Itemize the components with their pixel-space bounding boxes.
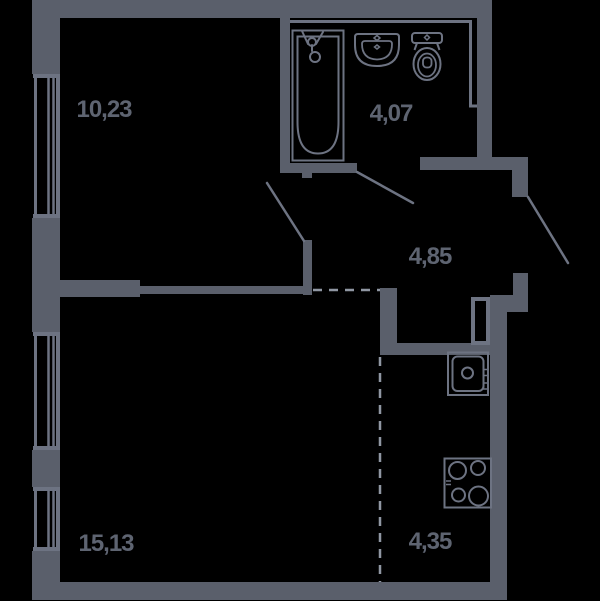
stove-burner-3: [452, 489, 465, 502]
window-3: [33, 489, 60, 549]
wall-hall-north: [420, 157, 528, 170]
door-entrance: [528, 197, 568, 263]
wall-left-upper: [32, 0, 60, 74]
bathtub-faucet: [302, 31, 323, 51]
kitchen-sink-drain: [462, 368, 473, 379]
kitchen-sink-tap-2: [484, 383, 489, 389]
area-label-kitchen: 4,35: [409, 528, 452, 555]
wall-entrance-jamb-upper: [512, 167, 528, 197]
walls: [32, 0, 528, 600]
bathroom-sink-outer: [355, 34, 399, 66]
window-2-caps: [33, 334, 60, 448]
stove-burner-4: [469, 487, 488, 506]
wall-bathroom-south: [280, 163, 357, 173]
wall-living-east: [380, 288, 397, 345]
stove-icon: [445, 459, 492, 508]
area-label-bathroom: 4,07: [370, 100, 413, 127]
area-label-room-bottom-left: 15,13: [78, 530, 134, 557]
wall-bathroom-right: [477, 17, 492, 167]
window-1-pane-lines: [49, 76, 54, 216]
bathtub-drain: [310, 52, 320, 62]
wall-door-stub: [303, 240, 312, 295]
area-label-hallway: 4,85: [409, 243, 452, 270]
bathroom-sink-drain-mark: [375, 45, 380, 49]
area-label-room-top-left: 10,23: [76, 96, 132, 123]
stove-burner-2: [471, 461, 485, 475]
stove-oven-marks: [446, 481, 451, 485]
bathroom-sink-bowl: [362, 41, 392, 60]
vent-shaft: [473, 299, 488, 343]
window-3-caps: [33, 489, 60, 549]
wall-door-jamb-tab: [302, 173, 312, 178]
bathroom-sink-tap-mark: [374, 36, 380, 41]
bathtub-icon: [293, 31, 344, 161]
door-room-top-left: [267, 183, 304, 241]
wall-bathroom-left-partition: [280, 17, 290, 173]
toilet-flush: [423, 58, 432, 68]
stove-burner-1: [449, 462, 466, 479]
window-2-pane-lines: [49, 334, 54, 448]
door-bathroom: [357, 172, 413, 203]
wall-bottom: [32, 582, 507, 600]
toilet-tank-mark: [425, 35, 430, 40]
kitchen-sink-icon: [448, 353, 488, 396]
window-2: [33, 334, 60, 448]
kitchen-sink-tap-1: [484, 370, 489, 376]
window-1-caps: [33, 76, 60, 216]
bathroom-sink-icon: [355, 34, 399, 66]
wall-middle-thick: [32, 280, 140, 297]
wall-kitchen-right: [490, 295, 507, 600]
wall-left-middle: [32, 218, 60, 332]
window-3-pane-lines: [49, 489, 54, 549]
wall-left-pier: [32, 450, 60, 487]
wall-middle-partition: [140, 286, 312, 294]
open-plan-boundary: [313, 290, 380, 582]
window-1: [33, 76, 60, 216]
kitchen-sink-basin: [453, 357, 484, 392]
wall-top: [32, 0, 492, 18]
floor-plan-canvas: 10,23 4,07 4,85 15,13 4,35: [0, 0, 600, 601]
toilet-icon: [412, 33, 442, 80]
floor-plan: 10,23 4,07 4,85 15,13 4,35: [0, 0, 600, 601]
